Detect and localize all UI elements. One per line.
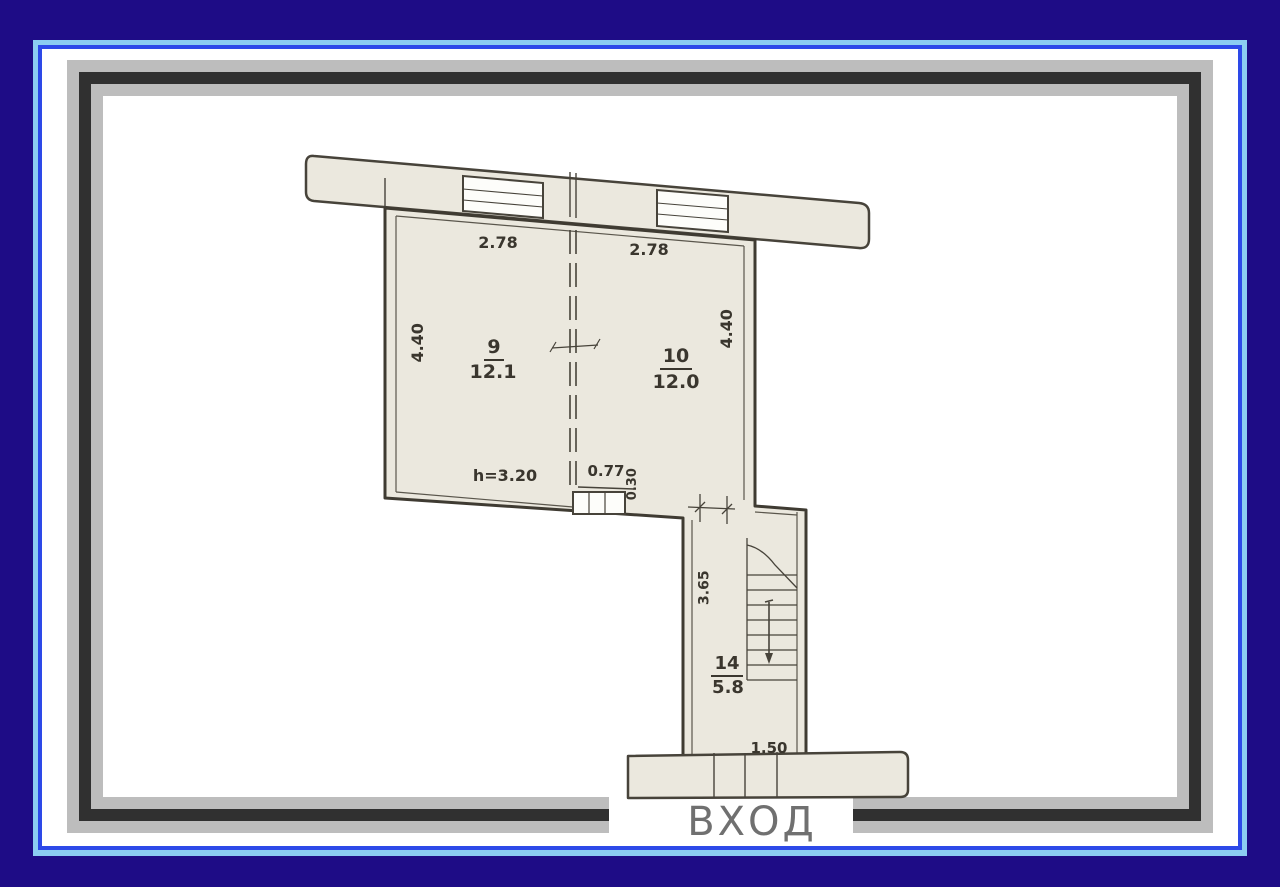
dim-stairwell: 3.65 [697, 558, 712, 618]
page: { "plan": { "entrance_label": "ВХОД", "r… [0, 0, 1280, 887]
dim-entrance-width: 1.50 [739, 740, 799, 757]
dim-left-side: 4.40 [409, 313, 427, 373]
dim-top-left: 2.78 [468, 234, 528, 252]
dim-top-right: 2.78 [619, 241, 679, 259]
ceiling-height-note: h=3.20 [465, 467, 545, 485]
vent-box-icon [573, 492, 625, 514]
room-14-area: 5.8 [698, 678, 758, 698]
room-9-area: 12.1 [463, 362, 523, 383]
room-14-number: 14 [705, 654, 749, 677]
floor-plan: 2.78 2.78 4.40 4.40 9 12.1 10 12.0 h=3.2… [300, 140, 940, 820]
room-9-number: 9 [474, 337, 514, 361]
room-10-area: 12.0 [646, 372, 706, 393]
entrance-porch [628, 752, 908, 798]
dim-niche: 0.30 [626, 454, 640, 514]
dim-right-side: 4.40 [718, 299, 736, 359]
room-10-number: 10 [656, 346, 696, 370]
entrance-label: ВХОД [652, 800, 852, 844]
